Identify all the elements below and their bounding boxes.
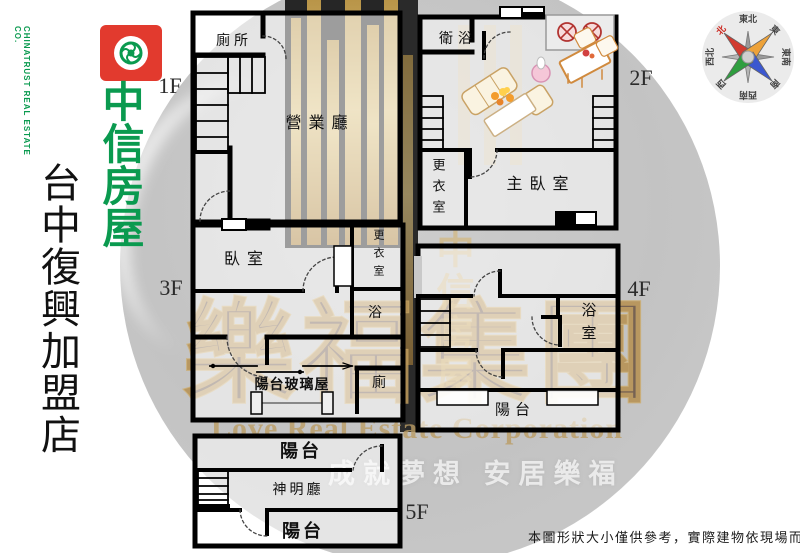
floor-plan-sheet: 樂福集團 中信房屋 Love Real Estate Corporation 成… [0, 0, 800, 553]
room-label-master-bedroom: 主臥室 [506, 170, 575, 194]
compass-nw-label: 西北 [704, 48, 715, 66]
disclaimer-text: 本圖形狀大小僅供參考，實際建物依現場而定。 [528, 527, 800, 546]
company-name: 中信房屋 [98, 80, 142, 250]
room-label-toilet-3f: 廁 [372, 372, 386, 392]
balcony-planter [437, 390, 488, 405]
room-label-bedroom-3f: 臥室 [224, 245, 270, 269]
floor-label-5f: 5F [405, 499, 428, 525]
floor-label-3f: 3F [159, 275, 182, 301]
company-english-name: CHINATRUST REAL ESTATE CO. [13, 26, 31, 156]
compass-sw-label: 西南 [739, 90, 757, 101]
balcony-planter [547, 390, 598, 405]
floor-label-4f: 4F [627, 276, 650, 302]
room-label-bathroom-4f: 浴室 [578, 302, 599, 348]
window [414, 256, 422, 298]
branch-name: 台中復興加盟店 [28, 162, 86, 462]
floor-label-2f: 2F [629, 65, 652, 91]
room-label-business-hall: 營業廳 [285, 109, 354, 133]
room-label-balcony-glasshouse: 陽台玻璃屋 [255, 374, 330, 394]
compass-icon: 北 東北 東 東南 南 西南 西 西北 [700, 8, 796, 109]
room-label-balcony-5f-top: 陽台 [280, 437, 322, 463]
window [500, 7, 522, 18]
room-label-bathroom-2f: 衛浴 [439, 28, 477, 48]
room-label-shrine-hall: 神明廳 [273, 479, 324, 499]
room-label-toilet-1f: 廁所 [216, 30, 252, 50]
compass-ne-label: 東北 [739, 13, 757, 24]
room-label-balcony-5f-bottom: 陽台 [282, 517, 324, 543]
window [246, 219, 270, 230]
room-label-dressing-3f: 更衣室 [370, 229, 386, 283]
room-label-balcony-4f: 陽台 [495, 399, 535, 420]
closet [334, 246, 352, 286]
compass-se-label: 東南 [781, 48, 792, 66]
room-label-dressing-2f: 更衣室 [429, 158, 448, 221]
chinatrust-logo-icon [99, 24, 163, 87]
window [222, 219, 246, 230]
room-label-bath-3f: 浴 [368, 302, 382, 322]
